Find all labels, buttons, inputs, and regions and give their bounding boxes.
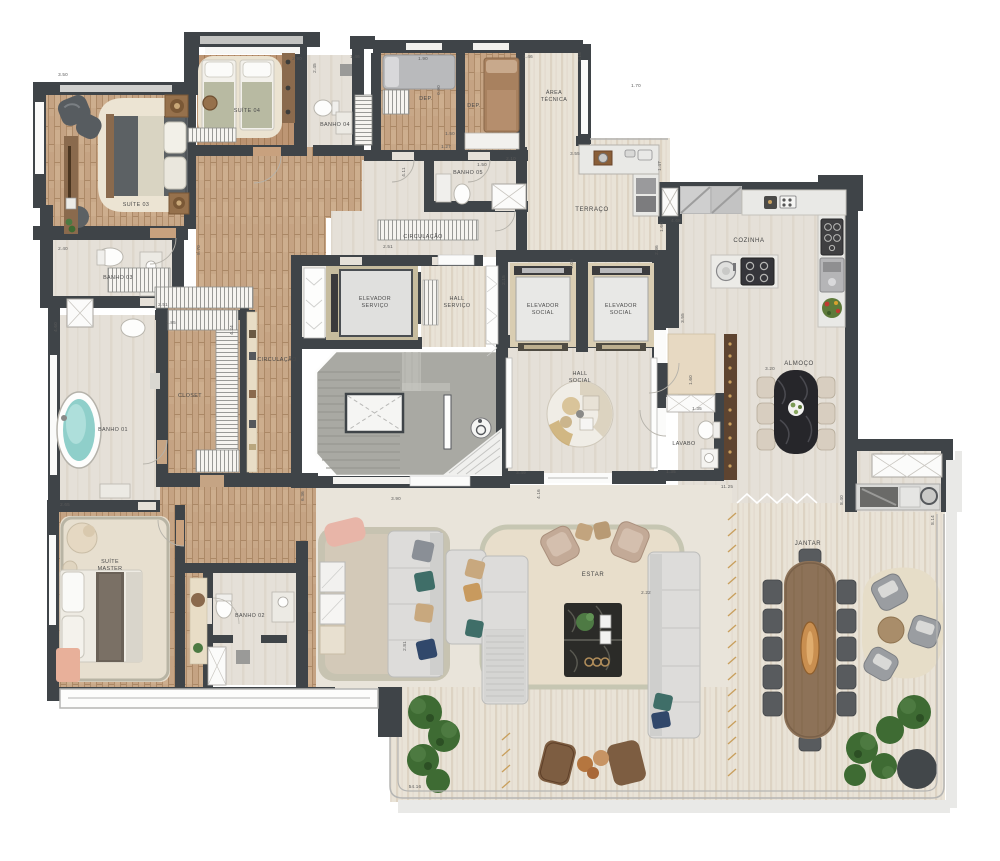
svg-text:DEP.: DEP. xyxy=(467,103,481,109)
svg-text:JANTAR: JANTAR xyxy=(795,541,822,547)
svg-text:TÉCNICA: TÉCNICA xyxy=(541,96,567,103)
svg-text:1.50: 1.50 xyxy=(445,131,455,136)
svg-text:1.27: 1.27 xyxy=(441,144,451,149)
svg-text:2.15: 2.15 xyxy=(577,52,582,62)
svg-text:ESTAR: ESTAR xyxy=(582,572,605,578)
svg-text:SUÍTE 03: SUÍTE 03 xyxy=(123,201,150,208)
svg-text:2.65: 2.65 xyxy=(60,502,70,507)
svg-text:2.51: 2.51 xyxy=(383,244,393,249)
svg-text:ALMOÇO: ALMOÇO xyxy=(784,361,814,367)
svg-text:COZINHA: COZINHA xyxy=(733,238,764,244)
svg-text:2.51: 2.51 xyxy=(158,302,168,307)
svg-text:ELEVADOR: ELEVADOR xyxy=(359,296,391,302)
svg-text:DEP.: DEP. xyxy=(419,96,433,102)
svg-text:1.00: 1.00 xyxy=(569,259,574,269)
svg-text:4.68: 4.68 xyxy=(671,218,681,223)
svg-text:0.90: 0.90 xyxy=(436,85,441,95)
svg-text:2.86: 2.86 xyxy=(654,245,659,255)
svg-text:6.36: 6.36 xyxy=(300,491,305,501)
svg-text:2.81: 2.81 xyxy=(402,641,407,651)
svg-text:ELEVADOR: ELEVADOR xyxy=(605,303,637,309)
svg-text:5.70: 5.70 xyxy=(196,245,201,255)
svg-text:4.60: 4.60 xyxy=(53,322,58,332)
svg-text:CIRCULAÇÃO: CIRCULAÇÃO xyxy=(403,233,442,240)
svg-text:BANHO 04: BANHO 04 xyxy=(320,122,350,128)
svg-text:SERVIÇO: SERVIÇO xyxy=(444,303,471,309)
svg-text:1.50: 1.50 xyxy=(477,162,487,167)
svg-text:3.55: 3.55 xyxy=(680,313,685,323)
svg-text:BANHO 05: BANHO 05 xyxy=(453,170,483,176)
svg-text:8.40: 8.40 xyxy=(839,495,844,505)
svg-text:2.15: 2.15 xyxy=(501,275,506,285)
svg-text:HALL: HALL xyxy=(449,296,464,302)
svg-text:CLOSET: CLOSET xyxy=(178,393,202,399)
svg-text:4.16: 4.16 xyxy=(536,489,541,499)
svg-text:1.46: 1.46 xyxy=(523,54,533,59)
svg-text:SERVIÇO: SERVIÇO xyxy=(362,303,389,309)
svg-text:1.35: 1.35 xyxy=(692,406,702,411)
svg-text:3.20: 3.20 xyxy=(765,366,775,371)
svg-text:2.45: 2.45 xyxy=(312,63,317,73)
svg-text:4.24: 4.24 xyxy=(229,325,234,335)
svg-text:3.49: 3.49 xyxy=(516,470,526,475)
svg-text:ELEVADOR: ELEVADOR xyxy=(527,303,559,309)
svg-text:1.47: 1.47 xyxy=(657,161,662,171)
svg-text:MASTER: MASTER xyxy=(98,566,123,572)
svg-text:TERRAÇO: TERRAÇO xyxy=(575,207,609,213)
svg-text:SOCIAL: SOCIAL xyxy=(610,310,632,316)
svg-text:3.55: 3.55 xyxy=(570,151,580,156)
svg-text:HALL: HALL xyxy=(572,371,587,377)
svg-text:BANHO 01: BANHO 01 xyxy=(98,427,128,433)
svg-text:CIRCULAÇÃO: CIRCULAÇÃO xyxy=(257,356,296,363)
svg-text:SOCIAL: SOCIAL xyxy=(569,378,591,384)
svg-text:54.16: 54.16 xyxy=(409,784,422,789)
svg-text:2.10: 2.10 xyxy=(506,156,516,161)
svg-text:BANHO 02: BANHO 02 xyxy=(235,613,265,619)
svg-text:3.90: 3.90 xyxy=(391,496,401,501)
svg-text:2.40: 2.40 xyxy=(58,246,68,251)
svg-text:SUÍTE 04: SUÍTE 04 xyxy=(234,107,261,114)
svg-text:1.46: 1.46 xyxy=(350,54,360,59)
svg-text:SUÍTE: SUÍTE xyxy=(101,558,119,565)
svg-text:ÁREA: ÁREA xyxy=(546,89,562,96)
svg-text:LAVABO: LAVABO xyxy=(672,441,695,447)
svg-text:BANHO 03: BANHO 03 xyxy=(103,275,133,281)
svg-text:1.85: 1.85 xyxy=(166,320,176,325)
svg-text:1.60: 1.60 xyxy=(688,375,693,385)
svg-text:4.11: 4.11 xyxy=(401,167,406,177)
svg-text:8.14: 8.14 xyxy=(930,515,935,525)
svg-text:SOCIAL: SOCIAL xyxy=(532,310,554,316)
svg-text:1.90: 1.90 xyxy=(418,56,428,61)
svg-text:2.90: 2.90 xyxy=(292,56,302,61)
svg-text:11.25: 11.25 xyxy=(721,484,733,489)
svg-text:1.35: 1.35 xyxy=(666,469,676,474)
svg-text:1.60: 1.60 xyxy=(659,222,664,232)
svg-text:2.22: 2.22 xyxy=(641,590,651,595)
svg-text:1.70: 1.70 xyxy=(631,83,641,88)
svg-text:3.50: 3.50 xyxy=(58,72,68,77)
